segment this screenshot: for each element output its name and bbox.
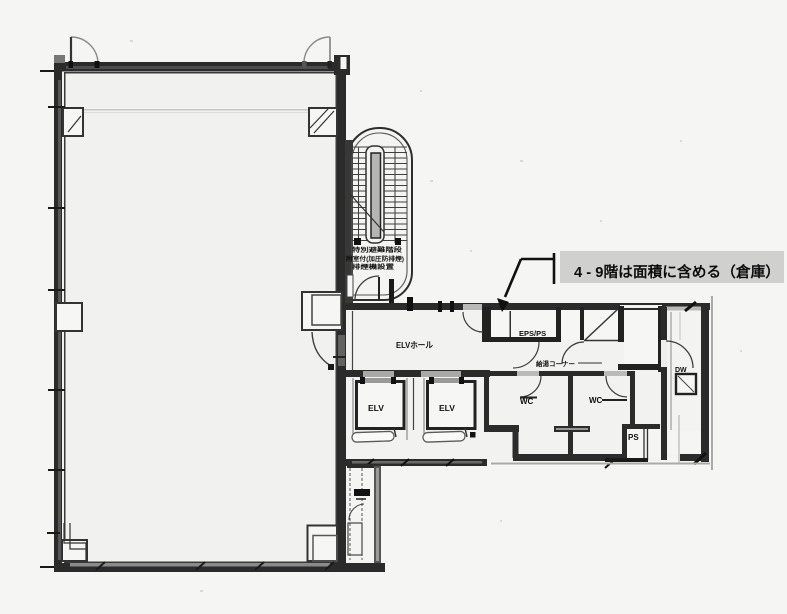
svg-text:PS: PS: [628, 433, 639, 442]
svg-text:ELV: ELV: [368, 403, 384, 413]
svg-text:WC: WC: [520, 397, 534, 406]
svg-text:ELVホール: ELVホール: [396, 340, 433, 350]
svg-text:EPS/PS: EPS/PS: [519, 329, 546, 338]
svg-text:排煙機設置: 排煙機設置: [352, 263, 394, 271]
svg-text:給湯コーナー: 給湯コーナー: [536, 359, 575, 368]
svg-text:特別避難階段: 特別避難階段: [352, 246, 402, 254]
svg-text:4 - 9階は面積に含める（倉庫）: 4 - 9階は面積に含める（倉庫）: [574, 263, 780, 281]
svg-text:附室付(加圧防排煙): 附室付(加圧防排煙): [346, 255, 404, 263]
svg-text:ELV: ELV: [439, 403, 455, 413]
svg-text:WC: WC: [589, 396, 603, 405]
